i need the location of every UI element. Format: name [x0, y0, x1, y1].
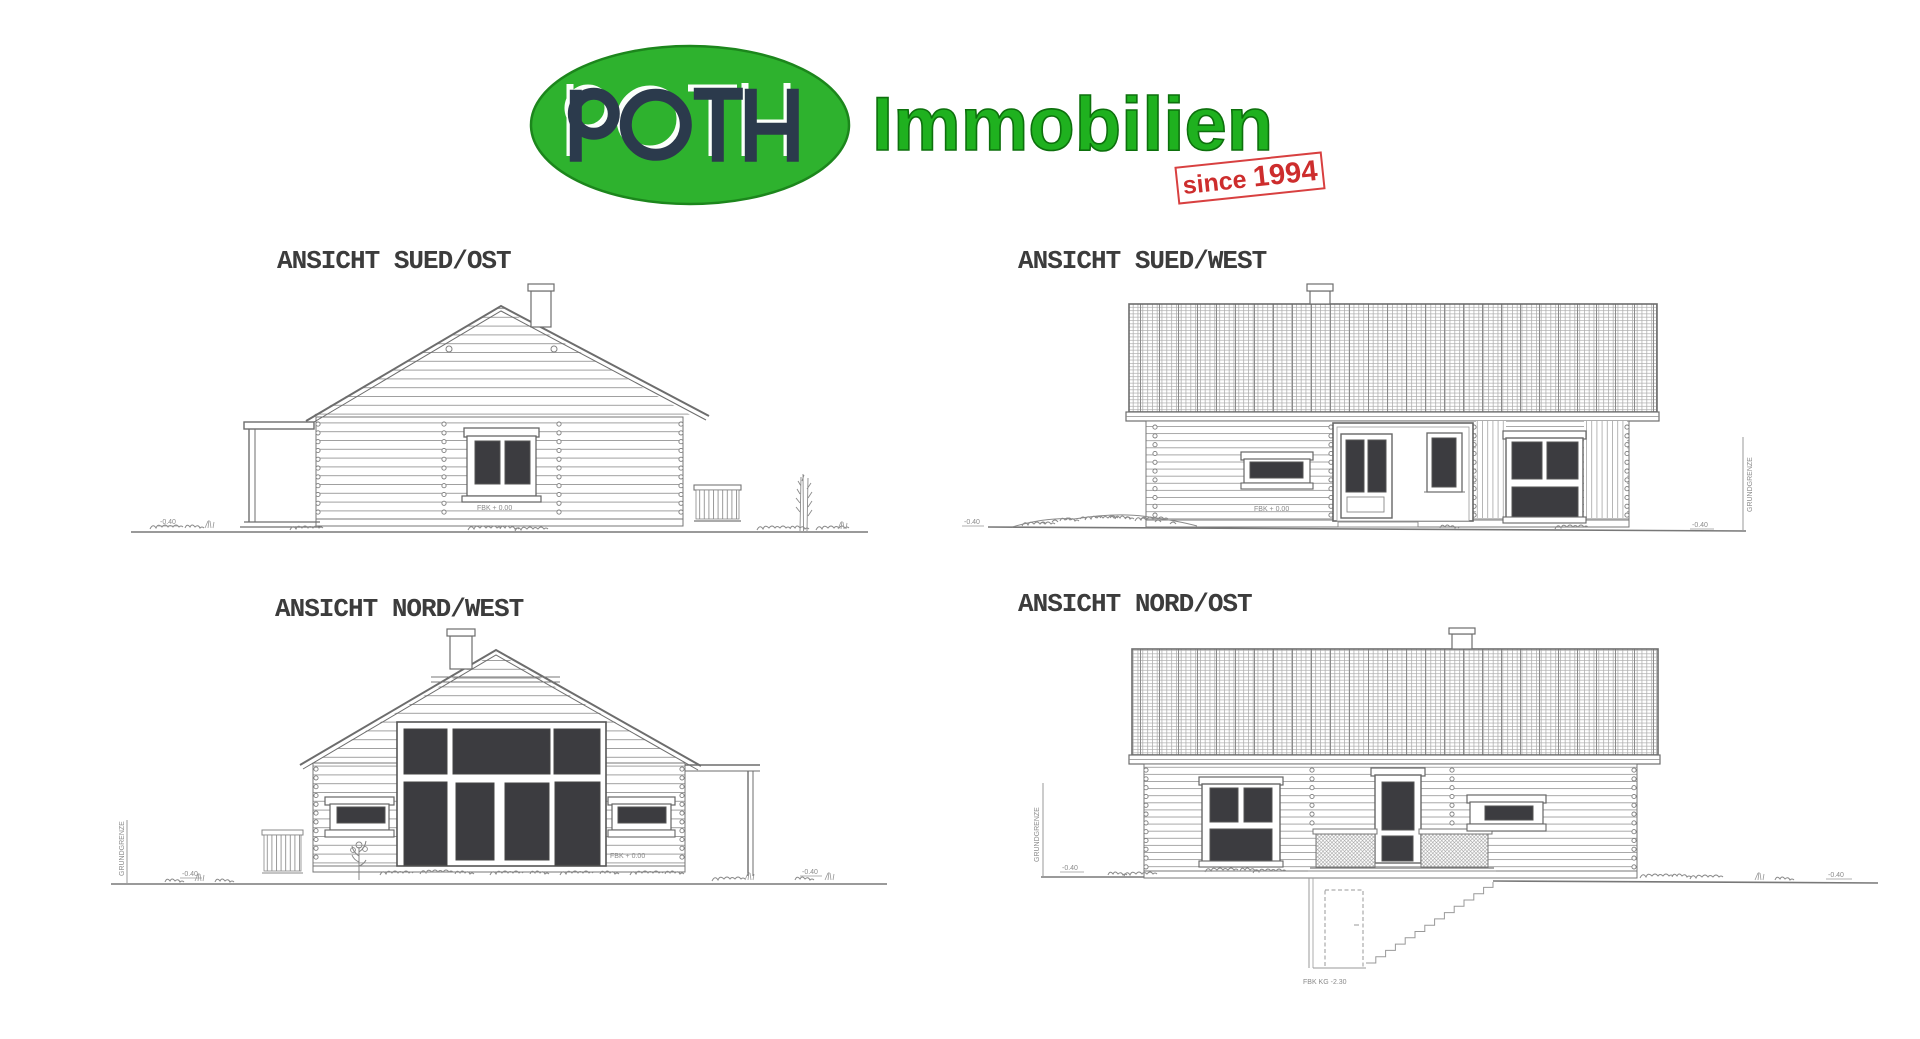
svg-text:-0.40: -0.40	[1828, 872, 1844, 879]
svg-text:GRUNDGRENZE: GRUNDGRENZE	[119, 821, 126, 876]
svg-text:-0.40: -0.40	[1062, 865, 1078, 872]
svg-text:-0.40: -0.40	[160, 519, 176, 526]
svg-text:-0.40: -0.40	[802, 869, 818, 876]
svg-text:FBK KG -2.30: FBK KG -2.30	[1303, 979, 1347, 986]
svg-text:FBK + 0.00: FBK + 0.00	[477, 505, 512, 512]
svg-text:GRUNDGRENZE: GRUNDGRENZE	[1747, 457, 1754, 512]
svg-text:-0.40: -0.40	[1692, 522, 1708, 529]
svg-text:ANSICHT SUED/WEST: ANSICHT SUED/WEST	[1018, 246, 1267, 276]
svg-text:FBK + 0.00: FBK + 0.00	[1254, 506, 1289, 513]
svg-text:Immobilien: Immobilien	[872, 82, 1273, 167]
svg-text:GRUNDGRENZE: GRUNDGRENZE	[1034, 807, 1041, 862]
svg-text:ANSICHT NORD/WEST: ANSICHT NORD/WEST	[275, 594, 524, 624]
svg-text:-0.40: -0.40	[182, 871, 198, 878]
svg-text:FBK + 0.00: FBK + 0.00	[610, 853, 645, 860]
svg-text:ANSICHT NORD/OST: ANSICHT NORD/OST	[1018, 589, 1252, 619]
svg-text:ANSICHT SUED/OST: ANSICHT SUED/OST	[277, 246, 511, 276]
svg-text:-0.40: -0.40	[964, 519, 980, 526]
